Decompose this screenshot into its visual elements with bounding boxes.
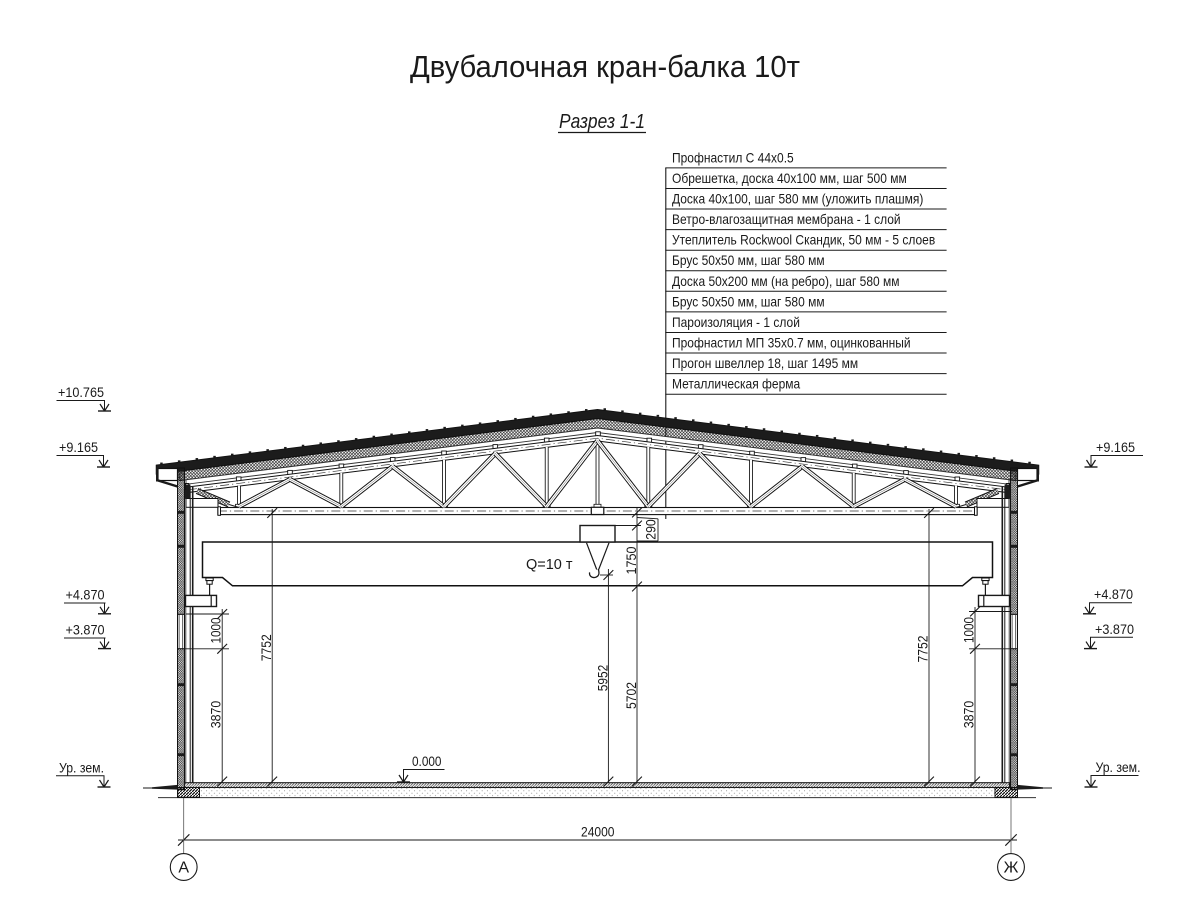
svg-text:Профнастил С 44х0.5: Профнастил С 44х0.5 <box>672 149 794 165</box>
svg-text:+4.870: +4.870 <box>66 587 105 603</box>
svg-text:24000: 24000 <box>581 824 615 840</box>
svg-text:Брус 50х50 мм, шаг 580 мм: Брус 50х50 мм, шаг 580 мм <box>672 293 825 309</box>
svg-text:Профнастил МП 35х0.7 мм, оцинк: Профнастил МП 35х0.7 мм, оцинкованный <box>672 335 911 351</box>
svg-text:Двубалочная кран-балка 10т: Двубалочная кран-балка 10т <box>410 49 800 84</box>
svg-text:Брус 50х50 мм, шаг 580 мм: Брус 50х50 мм, шаг 580 мм <box>672 252 825 268</box>
svg-text:3870: 3870 <box>961 701 977 729</box>
svg-text:+9.165: +9.165 <box>1096 439 1135 455</box>
svg-text:Доска 50х200 мм (на ребро), ша: Доска 50х200 мм (на ребро), шаг 580 мм <box>672 273 900 289</box>
svg-text:+10.765: +10.765 <box>58 384 104 400</box>
svg-text:Q=10 т: Q=10 т <box>526 557 573 573</box>
svg-text:3870: 3870 <box>208 701 224 729</box>
svg-text:+9.165: +9.165 <box>59 439 98 455</box>
svg-text:+3.870: +3.870 <box>1095 621 1134 637</box>
svg-text:Ж: Ж <box>1004 860 1019 877</box>
svg-text:Доска 40х100, шаг 580 мм (улож: Доска 40х100, шаг 580 мм (уложить плашмя… <box>672 191 923 207</box>
svg-text:290: 290 <box>643 519 659 540</box>
svg-text:Ветро-влагозащитная мембрана -: Ветро-влагозащитная мембрана - 1 слой <box>672 211 901 227</box>
svg-text:Металлическая ферма: Металлическая ферма <box>672 376 800 392</box>
svg-text:1750: 1750 <box>623 546 639 574</box>
svg-text:5952: 5952 <box>594 665 610 692</box>
svg-text:Разрез 1-1: Разрез 1-1 <box>559 111 645 133</box>
svg-text:Утеплитель Rockwool Скандик, 5: Утеплитель Rockwool Скандик, 50 мм - 5 с… <box>672 232 935 248</box>
svg-text:5702: 5702 <box>623 682 639 709</box>
svg-text:Ур. зем.: Ур. зем. <box>59 759 104 775</box>
svg-text:+4.870: +4.870 <box>1094 586 1133 602</box>
svg-text:Ур. зем.: Ур. зем. <box>1096 759 1141 775</box>
svg-text:Пароизоляция - 1 слой: Пароизоляция - 1 слой <box>672 314 800 330</box>
svg-text:Прогон швеллер 18, шаг 1495 мм: Прогон швеллер 18, шаг 1495 мм <box>672 355 858 371</box>
svg-text:7752: 7752 <box>915 635 931 662</box>
svg-text:1000: 1000 <box>208 617 224 643</box>
svg-text:+3.870: +3.870 <box>66 622 105 638</box>
svg-text:А: А <box>178 860 189 877</box>
svg-text:0.000: 0.000 <box>412 753 442 769</box>
svg-text:Обрешетка, доска 40х100 мм, ша: Обрешетка, доска 40х100 мм, шаг 500 мм <box>672 170 907 186</box>
svg-text:7752: 7752 <box>258 634 274 661</box>
svg-text:1000: 1000 <box>961 617 977 643</box>
